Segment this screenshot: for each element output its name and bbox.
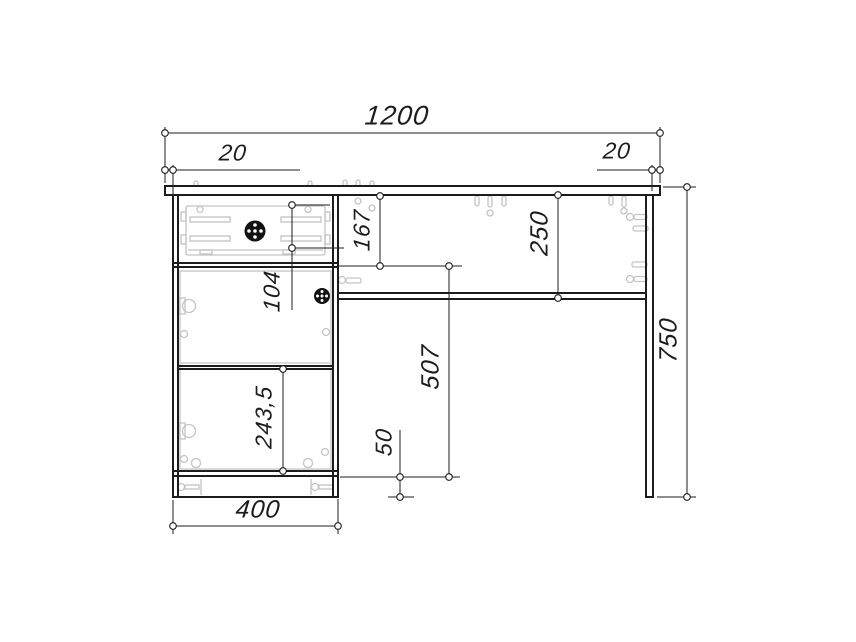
keyboard-shelf <box>338 293 646 299</box>
dim-label-overhang-left: 20 <box>218 142 248 165</box>
dim-label-plinth-height: 50 <box>373 427 396 457</box>
right-side-panel <box>646 195 653 497</box>
desk-structure <box>165 186 660 497</box>
dim-label-drawer-box-height: 104 <box>261 269 284 313</box>
dim-label-drawer-section-height: 167 <box>351 208 374 252</box>
dim-label-overhang-right: 20 <box>602 140 632 163</box>
dim-label-total-width: 1200 <box>364 103 431 130</box>
dim-label-total-height: 750 <box>657 316 682 363</box>
cabinet-shelf-under-drawer <box>173 263 338 267</box>
dim-label-door-opening-height: 507 <box>419 343 444 390</box>
door-knob <box>314 288 330 304</box>
technical-drawing-canvas: 1200 20 20 750 400 167 250 104 243,5 507… <box>0 0 856 642</box>
dim-label-cabinet-width: 400 <box>234 498 281 523</box>
cabinet-inner-shelf <box>178 366 333 369</box>
drawer-knob <box>245 221 266 242</box>
cabinet-bottom-panel <box>173 471 338 476</box>
dim-label-worktop-to-shelf: 250 <box>528 209 553 256</box>
dim-label-door-lower-section: 243,5 <box>253 385 276 450</box>
worktop <box>165 186 660 195</box>
drawing-linework <box>0 0 856 642</box>
